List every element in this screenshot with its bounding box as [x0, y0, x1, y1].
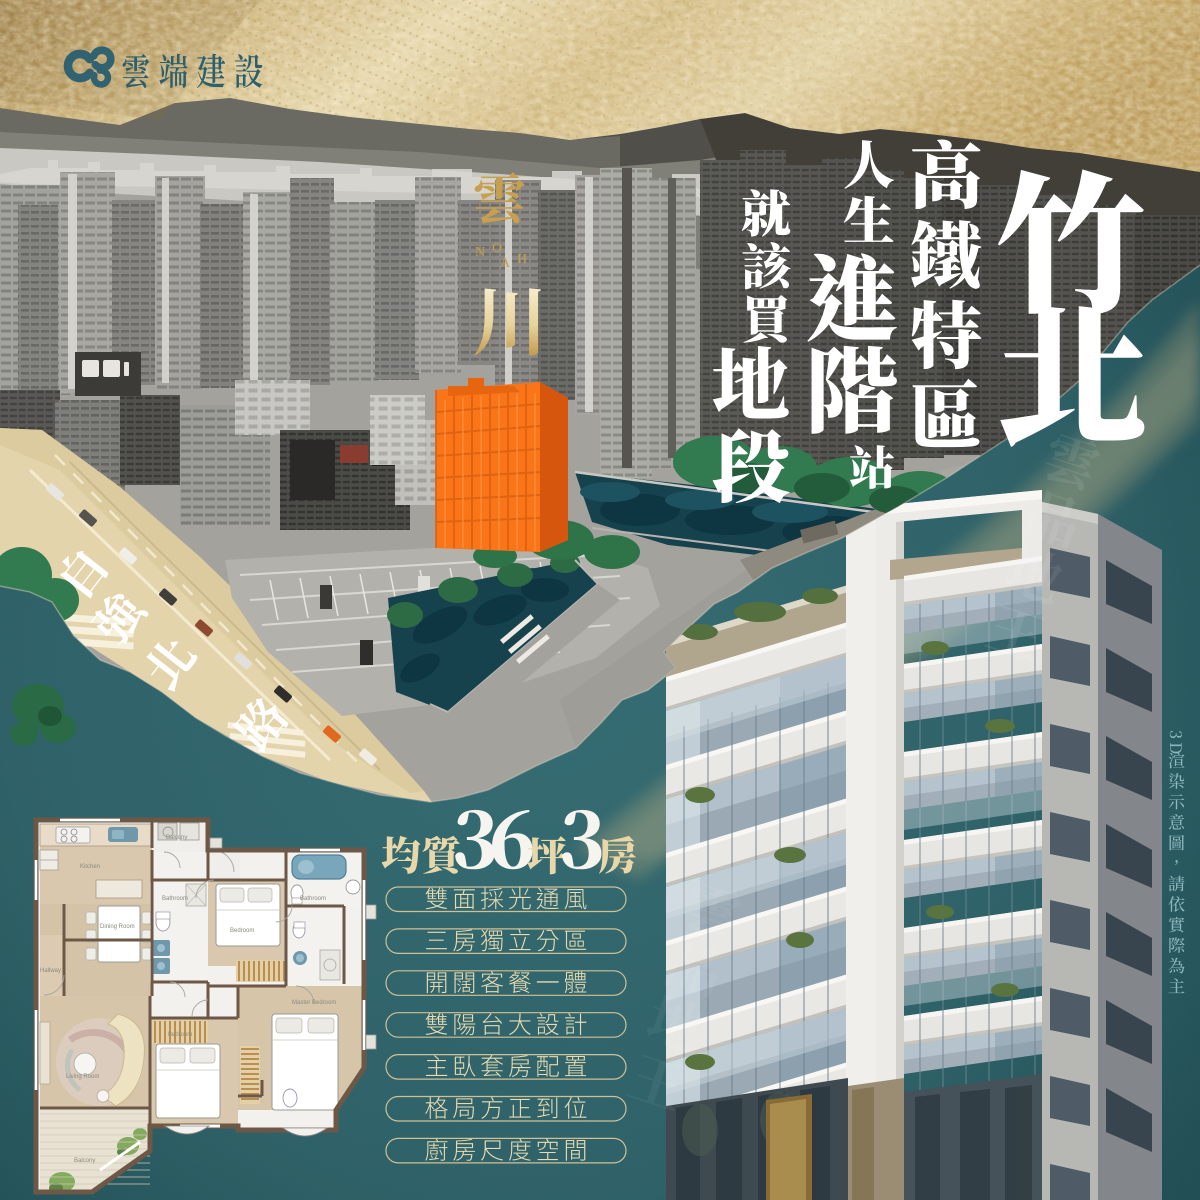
svg-text:Living Room: Living Room [66, 1074, 99, 1080]
svg-text:Kitchen: Kitchen [80, 864, 100, 870]
svg-text:Dining Room: Dining Room [100, 924, 135, 930]
svg-text:Balcony: Balcony [166, 835, 187, 841]
svg-text:Bathroom: Bathroom [162, 896, 188, 902]
svg-text:A: A [500, 256, 512, 271]
svg-text:H: H [517, 252, 529, 267]
svg-text:N: N [475, 245, 487, 260]
svg-text:O: O [492, 241, 504, 256]
svg-text:Bedroom: Bedroom [168, 1032, 192, 1038]
svg-text:Bedroom: Bedroom [230, 928, 254, 934]
svg-text:Bathroom: Bathroom [300, 896, 326, 902]
svg-text:Hallway: Hallway [40, 968, 61, 974]
svg-text:Master Bedroom: Master Bedroom [292, 1000, 336, 1006]
svg-text:Balcony: Balcony [74, 1158, 95, 1164]
